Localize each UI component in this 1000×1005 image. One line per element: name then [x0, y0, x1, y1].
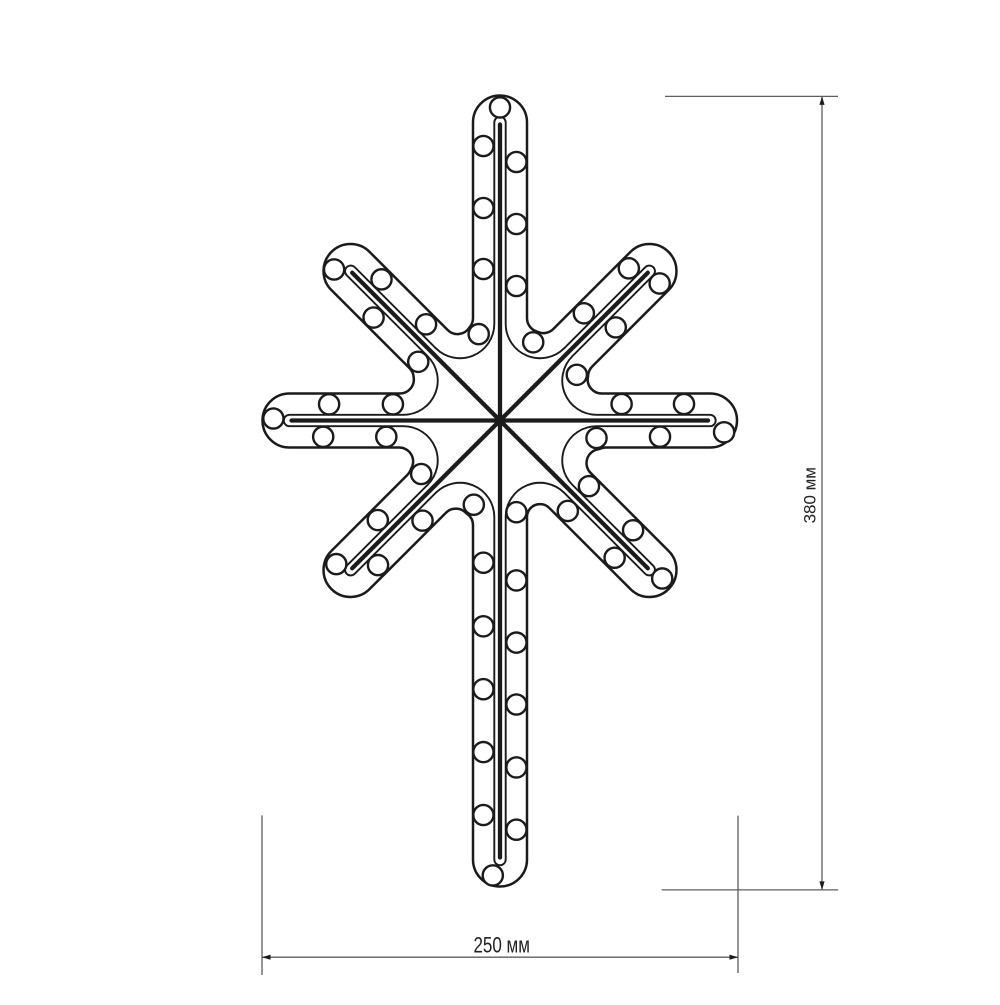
svg-text:250 мм: 250 мм [473, 933, 530, 958]
svg-text:380 мм: 380 мм [800, 467, 819, 523]
